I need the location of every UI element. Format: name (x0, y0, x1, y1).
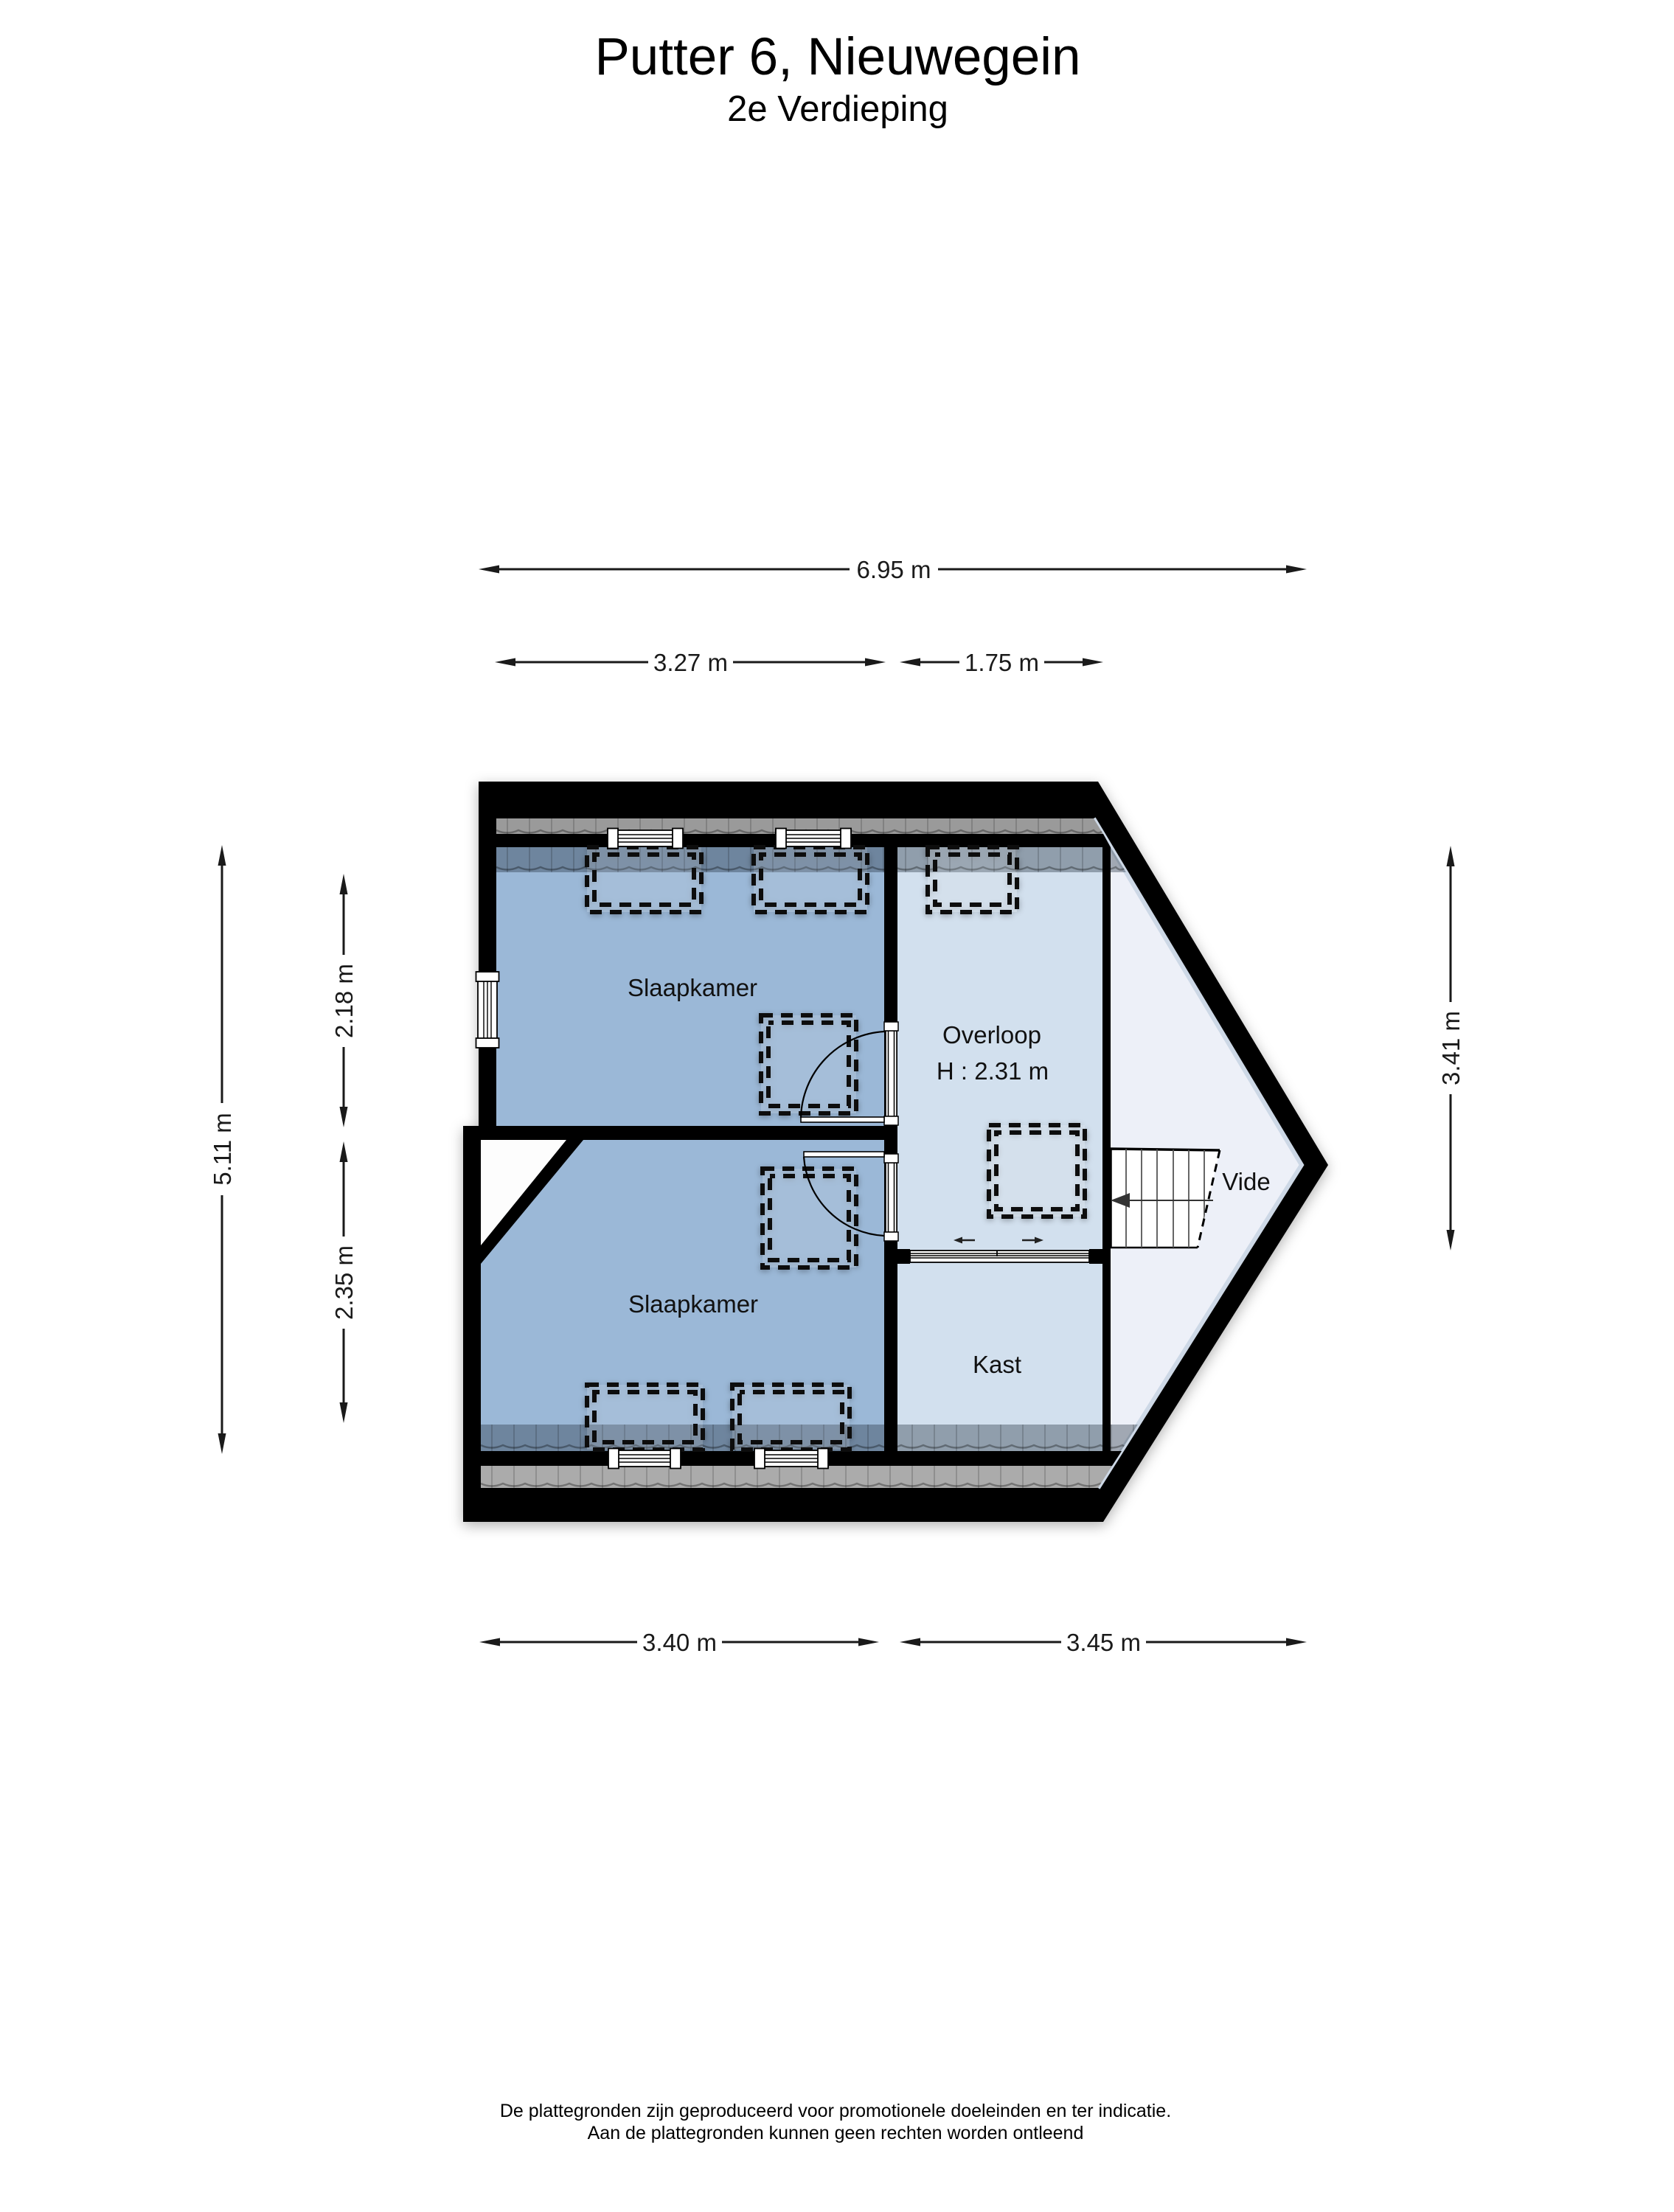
svg-text:3.40 m: 3.40 m (642, 1629, 717, 1656)
svg-text:Vide: Vide (1222, 1168, 1270, 1195)
svg-text:De plattegronden zijn geproduc: De plattegronden zijn geproduceerd voor … (500, 2101, 1171, 2121)
svg-text:3.45 m: 3.45 m (1066, 1629, 1141, 1656)
svg-text:3.41 m: 3.41 m (1437, 1011, 1465, 1085)
svg-text:5.11 m: 5.11 m (209, 1113, 236, 1185)
svg-text:Aan de plattegronden kunnen ge: Aan de plattegronden kunnen geen rechten… (588, 2123, 1084, 2143)
svg-text:3.27 m: 3.27 m (653, 649, 728, 676)
svg-text:Slaapkamer: Slaapkamer (628, 1290, 758, 1318)
svg-text:Kast: Kast (973, 1351, 1021, 1378)
svg-text:Overloop: Overloop (942, 1021, 1041, 1048)
svg-text:1.75 m: 1.75 m (965, 649, 1039, 676)
svg-text:2e Verdieping: 2e Verdieping (727, 89, 948, 129)
svg-text:6.95 m: 6.95 m (857, 556, 931, 583)
svg-text:2.18 m: 2.18 m (330, 964, 358, 1038)
svg-text:2.35 m: 2.35 m (330, 1245, 358, 1320)
svg-text:Slaapkamer: Slaapkamer (628, 974, 757, 1001)
svg-text:Putter 6, Nieuwegein: Putter 6, Nieuwegein (594, 28, 1080, 86)
svg-text:H : 2.31 m: H : 2.31 m (937, 1057, 1049, 1085)
